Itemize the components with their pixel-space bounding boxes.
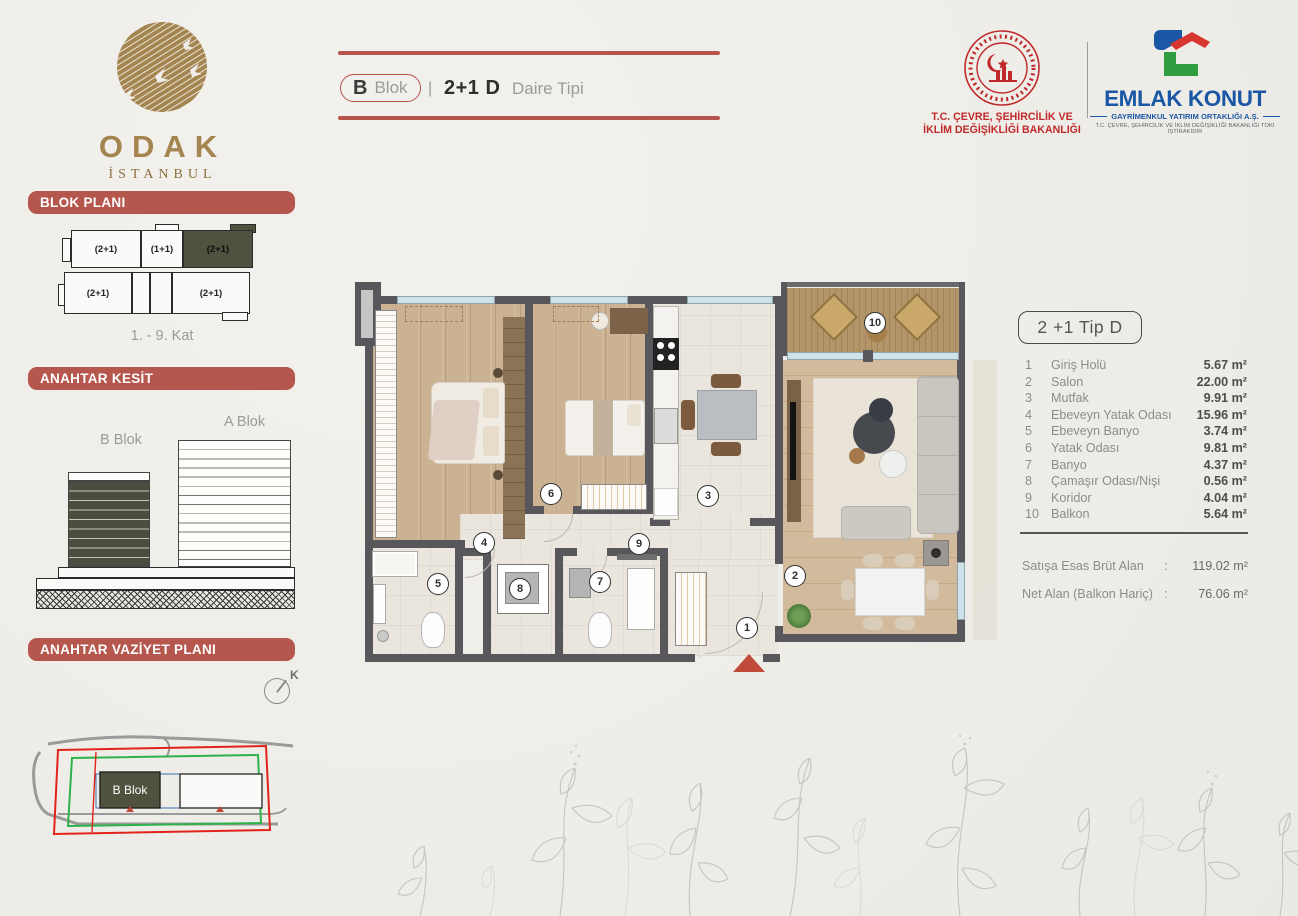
room-no: 8 bbox=[1025, 474, 1051, 488]
room-no: 1 bbox=[1025, 358, 1051, 372]
wall bbox=[530, 506, 544, 514]
bed-throw bbox=[428, 400, 480, 460]
room-list-row: 7Banyo4.37 m² bbox=[1025, 458, 1247, 475]
kesit-ground-hatch bbox=[36, 590, 295, 609]
wardrobe-dark bbox=[503, 317, 525, 539]
room-marker-4: 4 bbox=[473, 532, 495, 554]
burner bbox=[668, 342, 675, 349]
room-list-row: 1Giriş Holü5.67 m² bbox=[1025, 358, 1247, 375]
block-plan-unit: (2+1) bbox=[71, 230, 141, 268]
summary-label: Net Alan (Balkon Hariç) bbox=[1022, 587, 1164, 601]
ministry-seal-icon bbox=[962, 28, 1042, 108]
balcony-rail bbox=[783, 282, 965, 287]
plant bbox=[787, 604, 811, 628]
wall bbox=[780, 634, 965, 642]
shower bbox=[373, 552, 417, 576]
room-list-row: 3Mutfak9.91 m² bbox=[1025, 391, 1247, 408]
room-name: Balkon bbox=[1051, 507, 1204, 521]
room-list-row: 4Ebeveyn Yatak Odası15.96 m² bbox=[1025, 408, 1247, 425]
vanity bbox=[373, 584, 386, 624]
chair bbox=[711, 374, 741, 388]
chair bbox=[895, 554, 915, 567]
room-name: Ebeveyn Yatak Odası bbox=[1051, 408, 1197, 422]
window bbox=[957, 562, 965, 620]
kesit-b-label: B Blok bbox=[100, 432, 142, 448]
lamp bbox=[931, 548, 941, 558]
kesit-b-top-floor bbox=[68, 472, 150, 481]
kesit-slab bbox=[36, 578, 295, 590]
emlak-rule-left bbox=[1090, 116, 1107, 117]
balcony-glass-door bbox=[787, 352, 959, 360]
header-separator: | bbox=[428, 80, 432, 98]
emlak-rule-right bbox=[1263, 116, 1280, 117]
unit-type-box: 2 +1 Tip D bbox=[1018, 311, 1142, 344]
unit-type-subtitle: Daire Tipi bbox=[512, 79, 584, 99]
block-plan-unit-highlighted: (2+1) bbox=[183, 230, 253, 268]
chair bbox=[895, 617, 915, 630]
area-summary: Satışa Esas Brüt Alan : 119.02 m² Net Al… bbox=[1022, 545, 1248, 601]
block-plan-core bbox=[150, 272, 172, 314]
window bbox=[687, 296, 773, 304]
door-arc bbox=[700, 656, 701, 657]
washer-2 bbox=[569, 568, 591, 598]
curtain-symbol bbox=[405, 306, 463, 322]
room-name: Mutfak bbox=[1051, 391, 1204, 405]
chair bbox=[711, 442, 741, 456]
room-marker-10: 10 bbox=[864, 312, 886, 334]
room-area: 9.91 m² bbox=[1204, 391, 1247, 405]
ministry-name-line1: T.C. ÇEVRE, ŞEHİRCİLİK VE bbox=[897, 111, 1107, 124]
curtain-symbol bbox=[553, 306, 599, 322]
room-name: Banyo bbox=[1051, 458, 1204, 472]
room-list-row: 10Balkon5.64 m² bbox=[1025, 507, 1247, 524]
unit-type-title: 2+1 D bbox=[444, 77, 500, 100]
pillow bbox=[483, 426, 499, 456]
wall bbox=[959, 282, 965, 356]
tv bbox=[790, 402, 796, 480]
wall bbox=[525, 296, 533, 514]
emlak-subtitle: GAYRİMENKUL YATIRIM ORTAKLIĞI A.Ş. bbox=[1111, 112, 1259, 121]
room-area: 4.04 m² bbox=[1204, 491, 1247, 505]
block-plan-balcony-tab bbox=[62, 238, 71, 262]
facade-ledge bbox=[973, 360, 997, 640]
compass-icon bbox=[264, 678, 290, 704]
room-list-row: 6Yatak Odası9.81 m² bbox=[1025, 441, 1247, 458]
emlak-name: EMLAK KONUT bbox=[1090, 86, 1280, 112]
wall bbox=[775, 626, 783, 642]
room-marker-2: 2 bbox=[784, 565, 806, 587]
room-marker-9: 9 bbox=[628, 533, 650, 555]
room-area: 0.56 m² bbox=[1204, 474, 1247, 488]
refrigerator bbox=[654, 488, 678, 516]
vanity bbox=[627, 568, 655, 630]
wall bbox=[763, 654, 780, 662]
room-area: 4.37 m² bbox=[1204, 458, 1247, 472]
room-list-row: 2Salon22.00 m² bbox=[1025, 375, 1247, 392]
block-plan-unit-label: (1+1) bbox=[151, 244, 173, 255]
room-name: Salon bbox=[1051, 375, 1197, 389]
block-plan-unit-label: (2+1) bbox=[207, 244, 229, 255]
site-plan-diagram: B Blok bbox=[28, 722, 298, 847]
chair bbox=[863, 554, 883, 567]
block-plan-unit: (2+1) bbox=[64, 272, 132, 314]
room-no: 7 bbox=[1025, 458, 1051, 472]
block-plan-unit-label: (2+1) bbox=[87, 288, 109, 299]
block-letter: B bbox=[353, 77, 367, 100]
chair bbox=[681, 400, 695, 430]
compass-north-label: K bbox=[290, 668, 299, 682]
chair bbox=[863, 617, 883, 630]
room-no: 10 bbox=[1025, 507, 1051, 521]
wardrobe bbox=[581, 484, 647, 510]
wall bbox=[455, 540, 463, 662]
room-marker-1: 1 bbox=[736, 617, 758, 639]
sink bbox=[654, 408, 678, 444]
shower-drain bbox=[377, 630, 389, 642]
room-name: Yatak Odası bbox=[1051, 441, 1204, 455]
summary-value: 119.02 m² bbox=[1178, 559, 1248, 573]
room-no: 4 bbox=[1025, 408, 1051, 422]
wall bbox=[863, 350, 873, 362]
block-plan-balcony-tab bbox=[222, 312, 248, 321]
room-name: Ebeveyn Banyo bbox=[1051, 424, 1204, 438]
pillow bbox=[483, 388, 499, 418]
summary-label: Satışa Esas Brüt Alan bbox=[1022, 559, 1164, 573]
coat-closet bbox=[675, 572, 707, 646]
dining-table bbox=[855, 568, 925, 616]
room-list-row: 5Ebeveyn Banyo3.74 m² bbox=[1025, 424, 1247, 441]
kesit-building-b bbox=[68, 481, 150, 567]
kesit-slab bbox=[58, 567, 295, 578]
room-name: Çamaşır Odası/Nişi bbox=[1051, 474, 1204, 488]
window bbox=[397, 296, 495, 304]
site-plan-drawing bbox=[28, 722, 298, 847]
kesit-diagram: B Blok A Blok bbox=[28, 400, 295, 615]
nightstand bbox=[493, 368, 503, 378]
nightstand bbox=[493, 470, 503, 480]
room-name: Koridor bbox=[1051, 491, 1204, 505]
room-list-row: 9Koridor4.04 m² bbox=[1025, 491, 1247, 508]
burner bbox=[657, 354, 664, 361]
room-list: 1Giriş Holü5.67 m² 2Salon22.00 m² 3Mutfa… bbox=[1025, 358, 1247, 524]
room-marker-8: 8 bbox=[509, 578, 531, 600]
room-area: 15.96 m² bbox=[1197, 408, 1247, 422]
burner bbox=[657, 342, 664, 349]
side-table-wood bbox=[849, 448, 865, 464]
botanical-decoration bbox=[360, 728, 1298, 916]
room-area: 22.00 m² bbox=[1197, 375, 1247, 389]
room-area: 5.67 m² bbox=[1204, 358, 1247, 372]
odak-logo-icon bbox=[95, 14, 230, 124]
toilet bbox=[421, 612, 445, 648]
wall bbox=[750, 518, 783, 526]
wall bbox=[365, 654, 695, 662]
sofa-main bbox=[917, 376, 959, 534]
block-plan-unit-label: (2+1) bbox=[200, 288, 222, 299]
toilet bbox=[588, 612, 612, 648]
wall bbox=[555, 548, 563, 662]
desk bbox=[610, 308, 648, 334]
header-bottom-rule bbox=[338, 116, 720, 120]
ministry-name-line2: İKLİM DEĞİŞİKLİĞİ BAKANLIĞI bbox=[897, 124, 1107, 137]
dining-table-small bbox=[697, 390, 757, 440]
summary-value: 76.06 m² bbox=[1178, 587, 1248, 601]
room-list-row: 8Çamaşır Odası/Nişi0.56 m² bbox=[1025, 474, 1247, 491]
emlak-tagline: T.C. ÇEVRE, ŞEHİRCİLİK VE İKLİM DEĞİŞİKL… bbox=[1085, 123, 1285, 135]
wall bbox=[563, 548, 577, 556]
room-marker-3: 3 bbox=[697, 485, 719, 507]
chair bbox=[926, 580, 939, 600]
entrance-arrow bbox=[733, 654, 765, 672]
summary-row: Net Alan (Balkon Hariç) : 76.06 m² bbox=[1022, 587, 1248, 601]
odak-logo: ODAK İSTANBUL bbox=[95, 14, 230, 183]
brand-name: ODAK bbox=[95, 129, 230, 165]
kesit-building-a bbox=[178, 440, 291, 567]
wall bbox=[365, 296, 373, 662]
coffee-table-dark-small bbox=[869, 398, 893, 422]
room-name: Giriş Holü bbox=[1051, 358, 1204, 372]
chair bbox=[841, 580, 854, 600]
emlak-konut-icon bbox=[1152, 28, 1214, 82]
section-title-anahtar-vaziyet: ANAHTAR VAZİYET PLANI bbox=[28, 638, 295, 661]
room-area: 9.81 m² bbox=[1204, 441, 1247, 455]
coffee-table-marble bbox=[879, 450, 907, 478]
kesit-a-label: A Blok bbox=[224, 414, 265, 430]
summary-row: Satışa Esas Brüt Alan : 119.02 m² bbox=[1022, 559, 1248, 573]
block-plan-caption: 1. - 9. Kat bbox=[42, 328, 282, 344]
floor-plan: 1 2 3 4 5 6 7 8 9 10 bbox=[355, 282, 1010, 672]
summary-colon: : bbox=[1164, 559, 1178, 573]
window bbox=[550, 296, 628, 304]
wall bbox=[660, 548, 668, 662]
block-plan-unit: (2+1) bbox=[172, 272, 250, 314]
section-title-blok-plani: BLOK PLANI bbox=[28, 191, 295, 214]
block-word: Blok bbox=[374, 78, 407, 98]
wall bbox=[365, 540, 465, 548]
block-plan-core bbox=[132, 272, 150, 314]
exterior-shaft-inner bbox=[361, 290, 373, 338]
pillow bbox=[627, 404, 641, 426]
brand-city: İSTANBUL bbox=[95, 167, 230, 183]
room-no: 2 bbox=[1025, 375, 1051, 389]
block-plan-diagram: (2+1) (1+1) (2+1) (2+1) (2+1) 1. - 9. Ka… bbox=[62, 228, 262, 346]
summary-colon: : bbox=[1164, 587, 1178, 601]
summary-divider bbox=[1020, 532, 1248, 534]
room-no: 6 bbox=[1025, 441, 1051, 455]
emlak-subtitle-row: GAYRİMENKUL YATIRIM ORTAKLIĞI A.Ş. bbox=[1090, 112, 1280, 121]
room-area: 5.64 m² bbox=[1204, 507, 1247, 521]
ministry-name: T.C. ÇEVRE, ŞEHİRCİLİK VE İKLİM DEĞİŞİKL… bbox=[897, 111, 1107, 136]
room-marker-6: 6 bbox=[540, 483, 562, 505]
block-badge: B Blok bbox=[340, 74, 421, 102]
wardrobe bbox=[375, 310, 397, 538]
site-plan-b-blok-label: B Blok bbox=[104, 776, 156, 804]
room-no: 9 bbox=[1025, 491, 1051, 505]
block-plan-unit-label: (2+1) bbox=[95, 244, 117, 255]
sofa-small bbox=[841, 506, 911, 540]
section-title-anahtar-kesit: ANAHTAR KESİT bbox=[28, 367, 295, 390]
burner bbox=[668, 354, 675, 361]
logo-divider bbox=[1087, 42, 1088, 118]
block-plan-unit: (1+1) bbox=[141, 230, 183, 268]
room-area: 3.74 m² bbox=[1204, 424, 1247, 438]
brochure-page: B Blok | 2+1 D Daire Tipi ODAK İSTANBUL bbox=[0, 0, 1298, 916]
room-no: 3 bbox=[1025, 391, 1051, 405]
room-no: 5 bbox=[1025, 424, 1051, 438]
room-marker-7: 7 bbox=[589, 571, 611, 593]
room-marker-5: 5 bbox=[427, 573, 449, 595]
bed-blanket bbox=[593, 400, 613, 456]
header-top-rule bbox=[338, 51, 720, 55]
